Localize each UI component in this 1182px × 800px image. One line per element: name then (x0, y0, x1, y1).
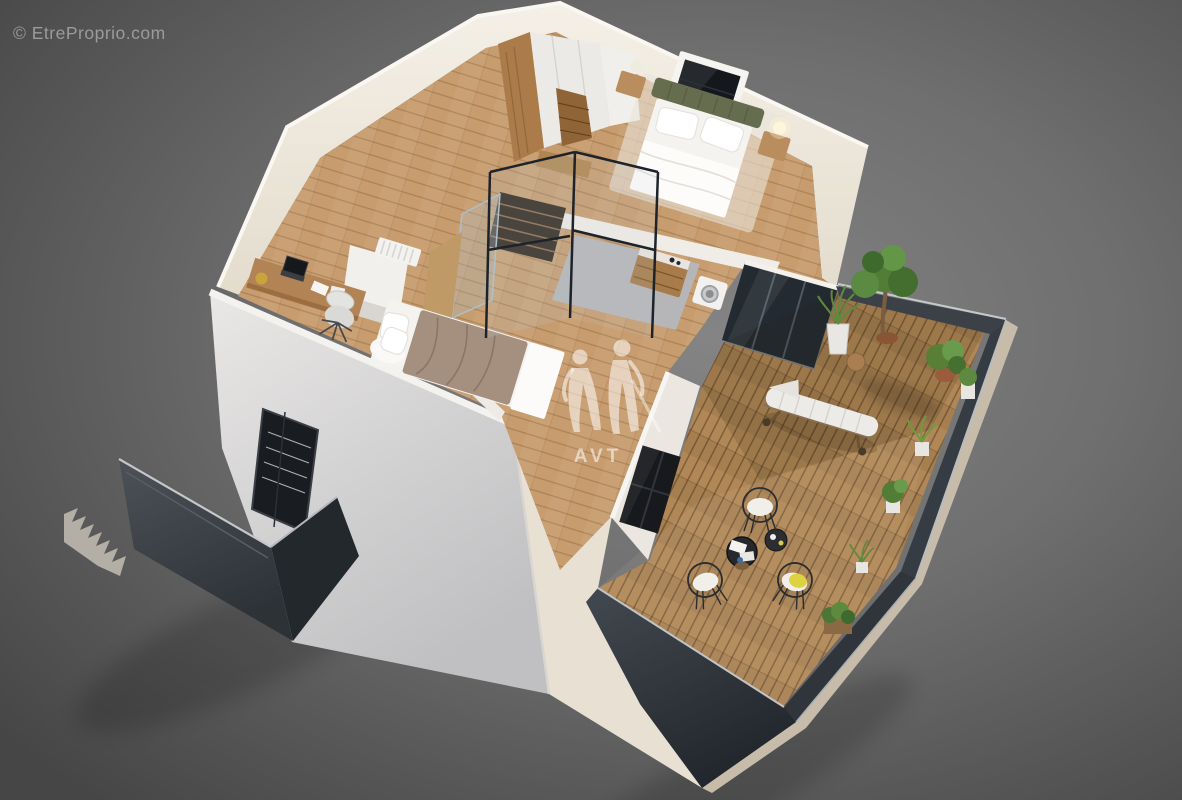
side-table (847, 353, 865, 371)
shower-glass (486, 152, 658, 338)
render-canvas: AVT © EtreProprio.com (0, 0, 1182, 800)
facade-window (252, 409, 318, 532)
floorplan-render: AVT © EtreProprio.com (0, 0, 1182, 800)
avt-text: AVT (574, 446, 623, 467)
seat-cushion (747, 498, 773, 516)
cup (770, 534, 776, 540)
copyright-watermark: © EtreProprio.com (13, 23, 166, 43)
